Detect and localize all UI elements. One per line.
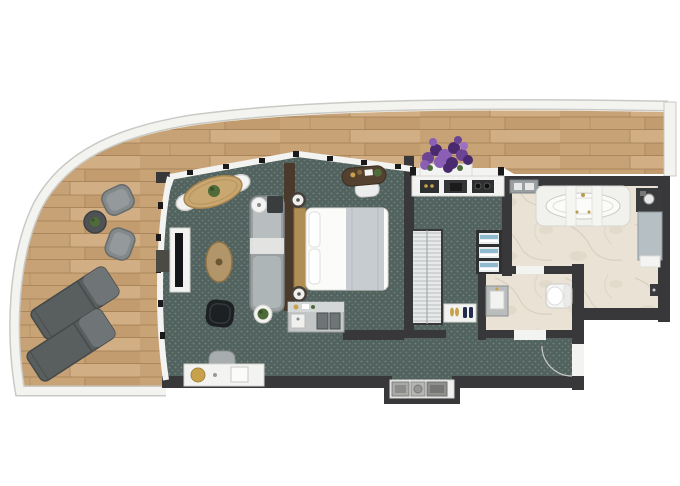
balcony-end-cap	[664, 102, 676, 176]
bed-headboard	[294, 208, 306, 290]
entry-door	[572, 344, 584, 376]
nightstand	[290, 192, 306, 208]
gold-sandals	[450, 308, 454, 317]
floor-plan-canvas	[0, 0, 680, 486]
plant-table	[254, 305, 272, 323]
hallway-floor	[286, 334, 572, 380]
sofa-throw	[250, 238, 284, 254]
tv-unit	[170, 228, 190, 292]
bathtub	[536, 186, 630, 226]
nightstand	[291, 286, 307, 302]
bed	[294, 208, 388, 290]
toilet-bowl	[547, 287, 563, 305]
black-armchair	[205, 299, 236, 329]
bathroom-door	[516, 266, 544, 274]
sofa	[250, 196, 284, 312]
shower-room-floor	[582, 276, 660, 312]
shoe-mat	[444, 304, 476, 322]
potted-plant	[258, 309, 269, 320]
tub-faucet	[581, 193, 585, 197]
toilet	[546, 284, 572, 308]
toilet-room-door	[514, 330, 546, 340]
floor-plan	[0, 0, 680, 486]
tv-wall-mount	[156, 250, 170, 272]
kitchenette-counter	[412, 176, 504, 196]
louvered-wardrobe	[412, 230, 442, 324]
dining-table-plant	[208, 185, 220, 197]
minibar-counter	[288, 302, 344, 332]
minibar-sink	[291, 314, 305, 328]
bistro-table-plant	[90, 217, 100, 227]
shower-glass	[638, 212, 662, 260]
wall-faucet	[650, 284, 658, 296]
towel-shelf	[476, 230, 502, 274]
utility-niche	[390, 380, 454, 398]
tv-screen	[175, 233, 183, 287]
shower-column	[636, 188, 662, 267]
bed-pillow	[309, 249, 320, 284]
cooktop-panel	[420, 180, 439, 193]
navy-shoes	[463, 307, 467, 318]
gold-tray	[191, 368, 205, 382]
shower-mat	[640, 256, 660, 267]
vanity-sink	[486, 286, 508, 316]
bed-pillow	[309, 212, 320, 247]
console-box	[231, 367, 248, 382]
side-table	[252, 196, 284, 213]
